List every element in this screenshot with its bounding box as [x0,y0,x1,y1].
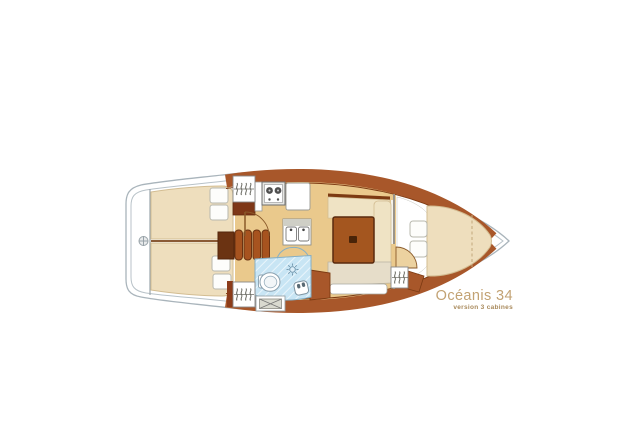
settee-front [330,284,387,294]
shower-head-icon [287,264,299,276]
aft-hanging-locker-icon [227,281,255,307]
saloon-table [333,217,374,263]
transom-fitting-icon [139,236,149,246]
stove-icon [262,182,285,205]
saloon-settee-bottom [328,262,391,286]
v-berth [427,206,492,276]
boat-floor-plan: Océanis 34 version 3 cabines [0,0,640,426]
forward-hanging-locker-icon [391,267,408,288]
boat-floor-plan-drawing [0,0,640,426]
galley-hanging-locker-icon [233,176,255,202]
brand-label: Océanis 34 version 3 cabines [436,289,513,311]
chart-table [310,270,330,300]
washbasin-icon [293,280,309,296]
galley-counter-strip [255,182,262,211]
companionway-steps [218,230,270,260]
galley-double-sink-icon [283,219,311,245]
boat-model-label: Océanis 34 [436,289,513,304]
layout-version-label: version 3 cabines [436,305,513,312]
saloon-settee-forward [374,201,391,267]
engine-compartment-hatch-icon [256,296,285,311]
fridge-counter [286,183,310,210]
